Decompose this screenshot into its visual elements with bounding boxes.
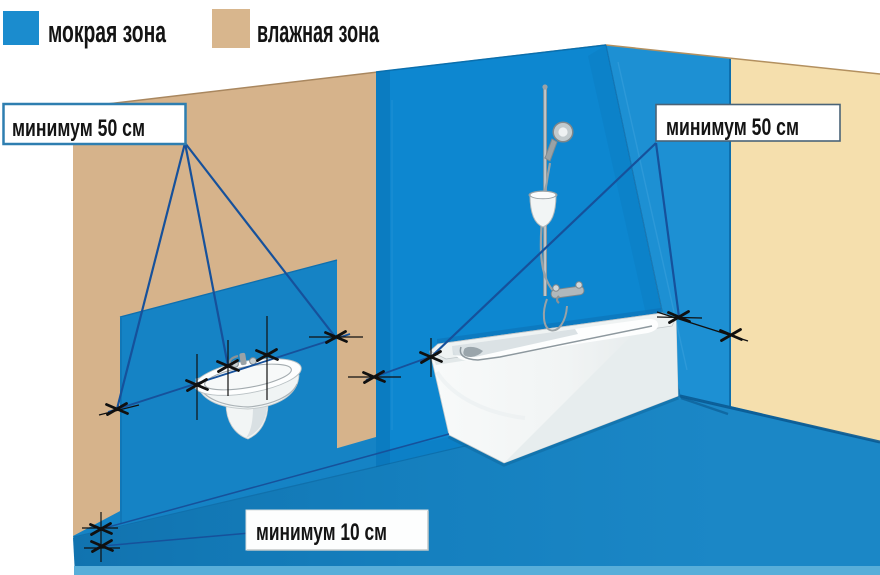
- svg-text:влажная зона: влажная зона: [257, 14, 379, 49]
- svg-text:минимум 10 см: минимум 10 см: [256, 519, 387, 546]
- svg-text:минимум 50 см: минимум 50 см: [666, 114, 799, 141]
- svg-text:минимум 50 см: минимум 50 см: [12, 115, 145, 142]
- svg-text:мокрая зона: мокрая зона: [48, 14, 166, 49]
